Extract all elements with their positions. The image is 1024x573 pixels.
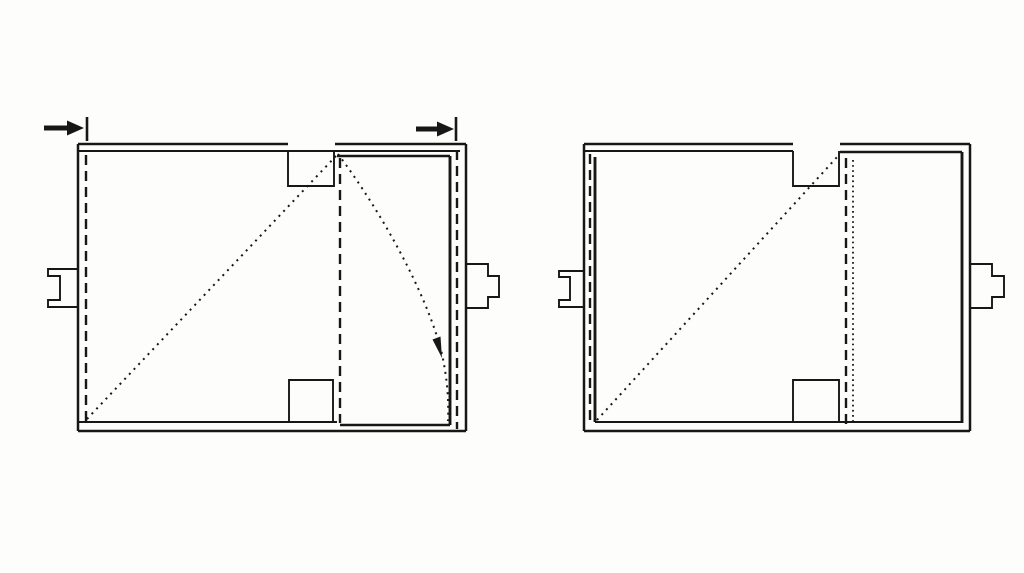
bottom-notch-outline bbox=[289, 380, 333, 422]
right-direction-arrow-head-icon bbox=[437, 122, 454, 137]
figure-left-flap-closing bbox=[44, 117, 499, 431]
swing-direction-arrowhead-icon bbox=[433, 337, 443, 359]
figure-right-flap-closed bbox=[559, 144, 1004, 431]
right-latch-tab-outline bbox=[970, 264, 1004, 308]
diagram-canvas bbox=[0, 0, 1024, 573]
flap-swing-arc-dotted bbox=[338, 154, 448, 421]
right-latch-tab-outline bbox=[466, 264, 499, 308]
scanned-technical-figure-page bbox=[0, 0, 1024, 573]
left-direction-arrow-head-icon bbox=[67, 121, 84, 136]
top-notch-outline bbox=[793, 151, 839, 186]
left-latch-tab-outline bbox=[559, 271, 584, 307]
bottom-notch-outline bbox=[793, 380, 839, 422]
top-notch-outline bbox=[288, 151, 334, 186]
left-latch-tab-outline bbox=[48, 269, 78, 307]
